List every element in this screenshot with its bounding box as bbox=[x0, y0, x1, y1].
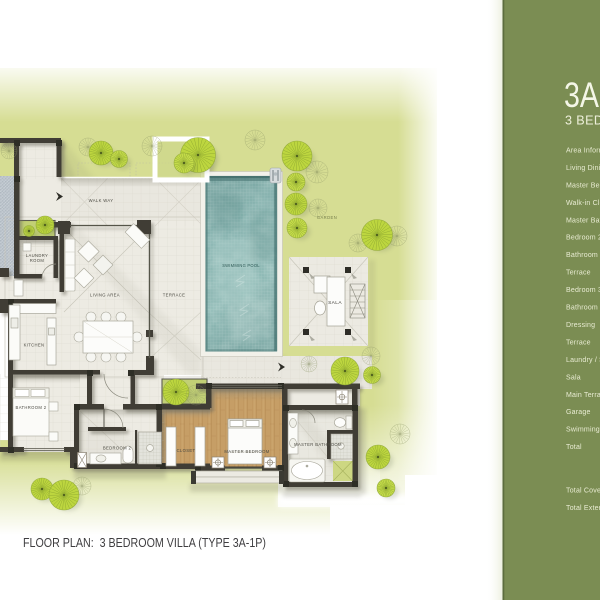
svg-text:GARDEN: GARDEN bbox=[317, 215, 337, 220]
svg-text:3A: 3A bbox=[564, 76, 600, 115]
svg-text:Bedroom 2: Bedroom 2 bbox=[566, 235, 600, 242]
svg-text:KITCHEN: KITCHEN bbox=[24, 343, 45, 348]
svg-text:Garage: Garage bbox=[566, 409, 591, 416]
svg-text:CLOSET: CLOSET bbox=[177, 448, 196, 453]
svg-text:Bathroom 3: Bathroom 3 bbox=[566, 305, 600, 312]
svg-text:Main Terrace: Main Terrace bbox=[566, 392, 600, 399]
svg-text:Area Information: Area Information bbox=[566, 148, 600, 155]
svg-text:Bedroom 3: Bedroom 3 bbox=[566, 287, 600, 294]
svg-text:3 BEDROOM VILLA: 3 BEDROOM VILLA bbox=[565, 114, 600, 128]
svg-text:Total External Area: Total External Area bbox=[566, 505, 600, 512]
svg-text:LIVING AREA: LIVING AREA bbox=[90, 293, 120, 298]
svg-text:Terrace: Terrace bbox=[566, 339, 591, 346]
svg-text:MASTER BEDROOM: MASTER BEDROOM bbox=[224, 449, 269, 454]
svg-text:Master Bathroom: Master Bathroom bbox=[566, 217, 600, 224]
svg-text:SALA: SALA bbox=[328, 300, 342, 306]
svg-text:FLOOR PLAN: 3 BEDROOM VILLA (: FLOOR PLAN: 3 BEDROOM VILLA (TYPE 3A-1P) bbox=[23, 535, 266, 550]
svg-text:Living Dining: Living Dining bbox=[566, 165, 600, 172]
svg-text:BATHROOM 2: BATHROOM 2 bbox=[16, 405, 47, 410]
svg-text:Laundry / Storage: Laundry / Storage bbox=[566, 357, 600, 364]
svg-text:Swimming Pool: Swimming Pool bbox=[566, 427, 600, 434]
svg-text:SWIMMING POOL: SWIMMING POOL bbox=[222, 263, 260, 268]
svg-text:Bathroom 2: Bathroom 2 bbox=[566, 252, 600, 259]
svg-text:WALK WAY: WALK WAY bbox=[89, 198, 114, 203]
svg-text:Walk-in Closet: Walk-in Closet bbox=[566, 200, 600, 207]
svg-text:Master Bedroom: Master Bedroom bbox=[566, 182, 600, 189]
svg-text:Dressing: Dressing bbox=[566, 322, 595, 329]
svg-text:ROOM: ROOM bbox=[30, 258, 45, 263]
svg-text:Total Covered Area: Total Covered Area bbox=[566, 488, 600, 495]
svg-text:Sala: Sala bbox=[566, 374, 581, 381]
svg-text:Terrace: Terrace bbox=[566, 270, 591, 277]
svg-text:Total: Total bbox=[566, 444, 582, 451]
svg-text:MASTER BATHROOM: MASTER BATHROOM bbox=[294, 442, 342, 447]
svg-text:BEDROOM 2: BEDROOM 2 bbox=[103, 446, 132, 451]
svg-text:TERRACE: TERRACE bbox=[163, 293, 185, 298]
